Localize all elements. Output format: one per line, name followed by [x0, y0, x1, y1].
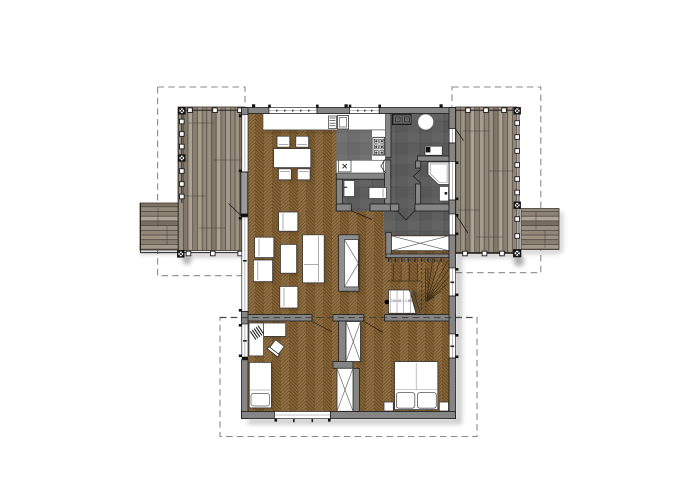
svg-text:10x 18 = 1.80: 10x 18 = 1.80 [391, 299, 412, 303]
